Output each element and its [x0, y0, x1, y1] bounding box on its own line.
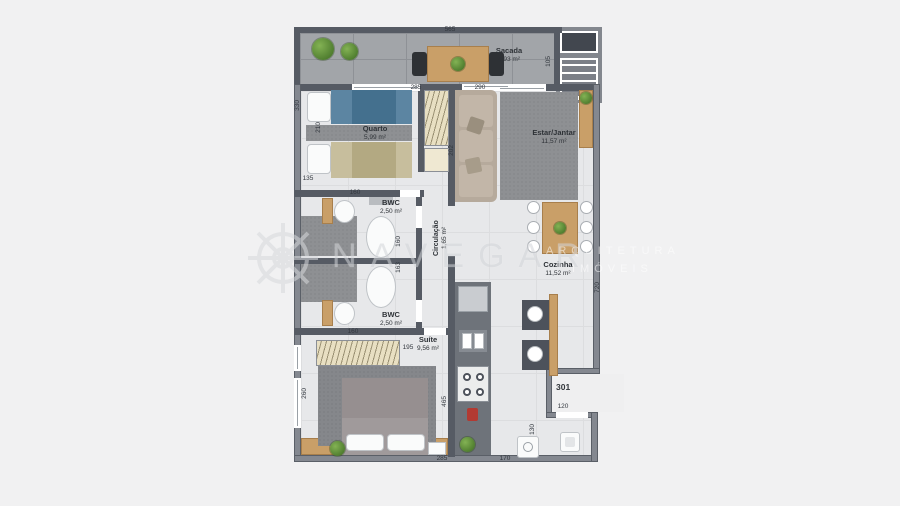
room-name: Sacada — [478, 46, 540, 56]
fire-extinguisher-icon — [467, 408, 478, 421]
burner-icon — [476, 388, 484, 396]
wall — [593, 84, 600, 374]
dim-stairs-height: 105 — [546, 56, 553, 67]
wardrobe-shelf — [424, 148, 449, 172]
stool-seat — [527, 306, 543, 322]
plant-icon — [341, 43, 358, 60]
wall — [294, 27, 300, 90]
room-name: Quarto — [338, 124, 412, 134]
room-label-sacada: Sacada 5,93 m² — [478, 46, 540, 64]
toilet — [334, 302, 355, 325]
room-name: Cozinha — [532, 260, 584, 270]
dim-left-lower: 135 — [298, 176, 318, 183]
room-label-cozinha: Cozinha 11,52 m² — [532, 260, 584, 278]
room-name: BWC — [366, 198, 416, 208]
bar-counter — [549, 294, 558, 376]
burner-icon — [463, 373, 471, 381]
bed-pillows — [307, 144, 331, 174]
sink — [366, 216, 396, 258]
room-label-quarto: Quarto 5,99 m² — [338, 124, 412, 142]
dim-entry-width: 120 — [553, 404, 573, 411]
room-area: 5,99 m² — [338, 134, 412, 142]
dim-bwc1-width: 160 — [344, 190, 366, 197]
dim-sofa-wall: 202 — [449, 145, 456, 156]
closet — [316, 340, 400, 366]
dim-kitchen-height: 720 — [595, 282, 602, 293]
stove — [457, 366, 489, 402]
suite-door — [424, 328, 446, 335]
room-area: 5,93 m² — [478, 56, 540, 64]
door-line — [500, 88, 544, 89]
wall — [448, 256, 455, 330]
bed-pillow — [387, 434, 425, 451]
stool-seat — [527, 346, 543, 362]
bed-blanket — [342, 378, 428, 418]
room-area: 11,57 m² — [518, 138, 590, 146]
fridge — [458, 286, 488, 312]
floor-plan: Sacada 5,93 m² Quarto 5,99 m² Estar/Jant… — [0, 0, 900, 506]
sink — [366, 266, 396, 308]
entry-door — [556, 412, 588, 418]
washer-door — [523, 442, 533, 452]
bed-blanket — [352, 142, 396, 178]
balcony-chair — [412, 52, 427, 76]
dim-suite-height: 260 — [302, 388, 309, 399]
bath-mat — [428, 442, 446, 455]
dim-bwc1-depth: 160 — [396, 236, 403, 247]
toilet — [334, 200, 355, 223]
room-name: Estar/Jantar — [518, 128, 590, 138]
plant-icon — [580, 92, 592, 104]
window-line — [297, 380, 298, 426]
dim-bwc2-depth: 163 — [396, 262, 403, 273]
dim-estar-width: 290 — [468, 85, 492, 92]
room-label-estar-jantar: Estar/Jantar 11,57 m² — [518, 128, 590, 146]
dining-chair — [580, 221, 593, 234]
dining-chair — [527, 221, 540, 234]
dim-quarto-width: 285 — [404, 85, 428, 92]
room-area: 1,65 m² — [441, 212, 449, 264]
bed-pillows — [307, 92, 331, 122]
dim-entry-depth: 130 — [530, 424, 537, 435]
sink-bowl — [474, 333, 484, 349]
throw-pillow — [465, 157, 483, 175]
dining-chair — [580, 201, 593, 214]
room-label-bwc-1: BWC 2,50 m² — [366, 198, 416, 216]
bed-pillow — [346, 434, 384, 451]
wall — [294, 27, 562, 33]
dining-chair — [527, 201, 540, 214]
room-area: 2,50 m² — [366, 208, 416, 216]
room-name: BWC — [366, 310, 416, 320]
room-name: Circulação — [432, 212, 441, 264]
dining-chair — [580, 240, 593, 253]
quarto-door — [400, 190, 420, 197]
plant-icon — [312, 38, 334, 60]
bar-stool — [522, 300, 549, 330]
kitchen-sink — [459, 330, 487, 352]
shower-area — [301, 264, 357, 302]
sink-bowl — [462, 333, 472, 349]
toilet-shelf — [322, 198, 333, 224]
dim-suite-width: 285 — [430, 456, 454, 463]
unit-number: 301 — [556, 382, 570, 392]
dining-chair — [527, 240, 540, 253]
wall — [591, 412, 598, 462]
burner-icon — [476, 373, 484, 381]
dim-service-width: 170 — [494, 456, 516, 463]
burner-icon — [463, 388, 471, 396]
dim-suite-wall: 465 — [442, 396, 449, 407]
window-line — [297, 347, 298, 369]
room-label-bwc-2: BWC 2,50 m² — [366, 310, 416, 328]
room-label-circulacao: Circulação 1,65 m² — [432, 212, 450, 264]
dim-balcony-width: 565 — [432, 27, 468, 34]
dim-quarto-height: 210 — [316, 122, 323, 133]
wall — [554, 27, 560, 90]
room-area: 11,52 m² — [532, 270, 584, 278]
bwc2-door — [416, 300, 422, 322]
washer — [517, 436, 539, 458]
bwc1-door — [416, 206, 422, 228]
plant-icon — [460, 437, 475, 452]
dim-left-upper: 330 — [295, 100, 302, 111]
tank-basin — [565, 437, 575, 447]
elevator — [560, 31, 598, 53]
bar-stool — [522, 340, 549, 370]
dim-closet-width: 195 — [398, 345, 418, 352]
plant-icon — [554, 222, 566, 234]
room-area: 2,50 m² — [366, 320, 416, 328]
laundry-tank — [560, 432, 580, 452]
bed-blanket — [352, 90, 396, 124]
wardrobe — [424, 90, 449, 146]
toilet-shelf — [322, 300, 333, 326]
dim-bwc2-width: 160 — [342, 329, 364, 336]
plant-icon — [451, 57, 465, 71]
plant-icon — [330, 441, 345, 456]
